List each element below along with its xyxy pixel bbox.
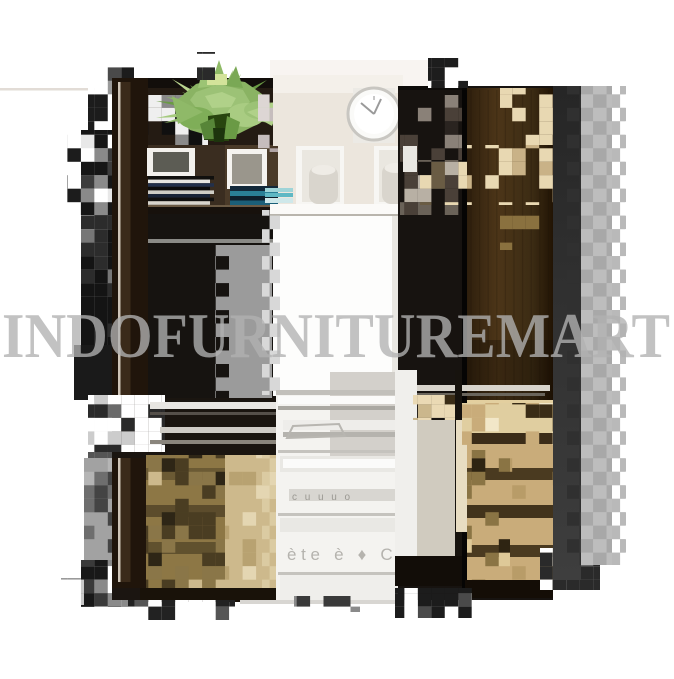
svg-text:INDOFURNITUREMART: INDOFURNITUREMART <box>2 300 670 371</box>
